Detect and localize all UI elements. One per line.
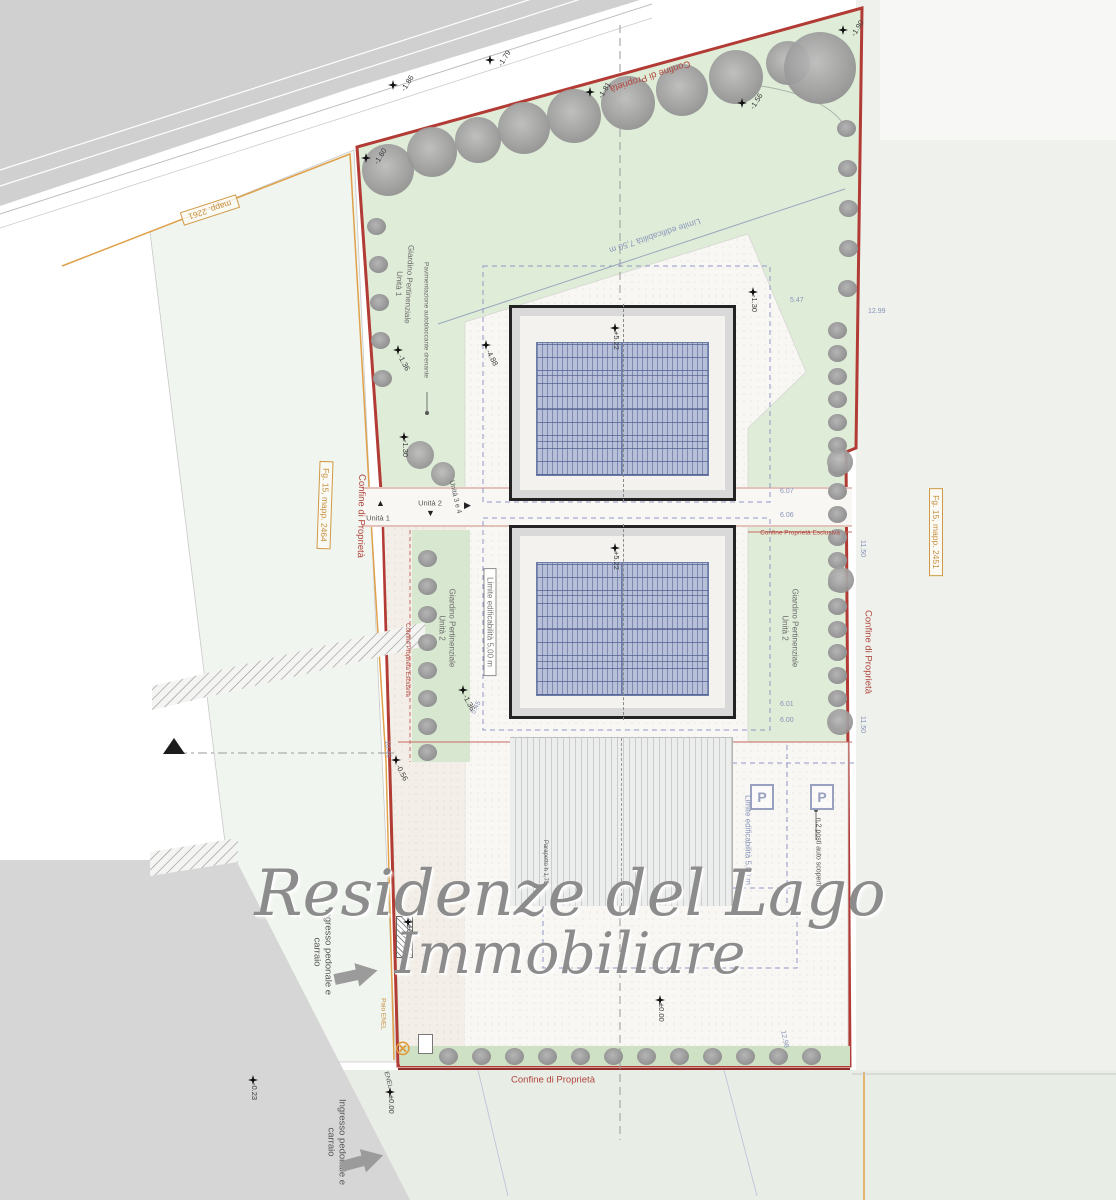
site-plan: P P ⊗ Confine di Proprietà Confine di Pr… [0,0,1116,1200]
label-giardino-unita1: Giardino Pertinenziale Unità 1 [391,228,416,341]
label-giardino-unita2-right: Giardino Pertinenziale Unità 2 [780,572,799,684]
enel-pole-icon: ⊗ [394,1038,412,1059]
giardino-line: Giardino Pertinenziale [791,589,800,668]
label-mapp-2261: mapp. 2261 [180,194,240,226]
label-confine-esclusiva: Confine Proprietà Esclusiva [404,623,410,697]
label-confine-esclusiva: Confine Proprietà Esclusiva [760,530,840,537]
giardino-unit: Unità 2 [438,615,447,640]
label-unita-2: Unità 2 [418,499,442,508]
label-palo-enel: Palo ENEL [380,998,387,1030]
label-ingresso-2: Ingresso pedonale e carraio [325,1086,348,1198]
dimension: 6.00 [780,717,794,724]
giardino-unit: Unità 2 [781,615,790,640]
dimension: 6.07 [780,488,794,495]
label-unita-1: Unità 1 [366,514,390,523]
dimension: 10.46 [383,740,392,758]
dimension: 5.47 [790,297,804,304]
label-confine-bottom: Confine di Proprietà [511,1075,595,1086]
unit1-arrow-icon: ▲ [376,498,385,508]
label-confine-top: Confine di Proprietà [608,58,691,94]
dimension: 6.06 [780,512,794,519]
label-limite-5m: Limite edificabilità 5,00 m [484,568,497,676]
label-fg15-mapp-2451: Fg. 15, mapp. 2451 [929,488,943,576]
giardino-line: Giardino Pertinenziale [403,245,416,324]
watermark-line1: Residenze del Lago [180,862,960,926]
dimension: 12.98 [779,1030,789,1049]
label-fg15-mapp-2464: Fg. 15, mapp. 2464 [316,461,333,549]
label-limite-7.5m: Limite edificabilità 7,50 m [608,216,702,255]
dimension: 11.50 [859,716,866,733]
dimension: 6.01 [780,701,794,708]
section-marker-icon [163,738,185,754]
label-enel: ENEL [382,1071,393,1089]
giardino-unit: Unità 1 [394,271,404,297]
label-pavimentazione: Pavimentazione autobloccante drenante [423,262,430,378]
dimension: 11.50 [859,540,866,557]
unit2-arrow-icon: ▼ [426,508,435,518]
unit34-arrow-icon: ▶ [464,500,471,511]
watermark: Residenze del Lago Immobiliare [180,862,960,983]
label-giardino-unita2-left: Giardino Pertinenziale Unità 2 [437,572,456,684]
dimension: 12.99 [868,308,886,315]
label-confine-right: Confine di Proprietà [863,610,874,694]
label-unita-3-4: Unità 3 e 4 [448,480,462,515]
watermark-line2: Immobiliare [180,926,960,983]
giardino-line: Giardino Pertinenziale [448,589,457,668]
